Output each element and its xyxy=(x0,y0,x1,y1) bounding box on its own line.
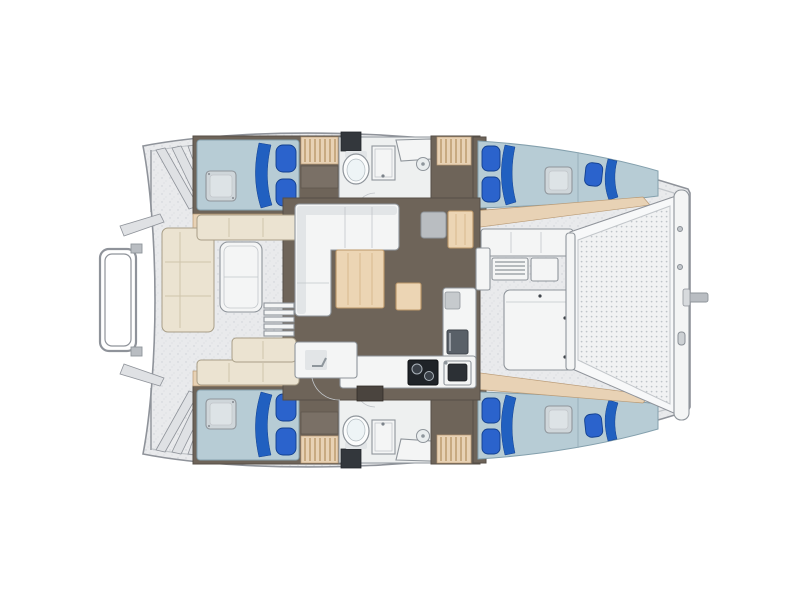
locker-latch xyxy=(538,294,541,297)
bowsprit-base xyxy=(683,289,690,306)
deck-hatch-glass xyxy=(549,171,568,190)
bow-cleat xyxy=(678,332,685,345)
sofa-backrest xyxy=(297,206,397,215)
cockpit-bench-bottom xyxy=(197,360,299,385)
sofa-backrest xyxy=(297,206,306,314)
island-cabinet xyxy=(396,283,421,310)
cockpit-corner-seat xyxy=(232,338,296,362)
beam-fitting xyxy=(678,265,683,270)
companionway-step xyxy=(357,386,383,401)
step-tread xyxy=(264,310,294,315)
catamaran-layout-diagram xyxy=(0,0,800,600)
side-cabinet xyxy=(476,248,490,290)
wardrobe xyxy=(301,137,338,188)
stove-burner xyxy=(425,372,434,381)
stove-burner xyxy=(412,364,422,374)
dinghy-davit-frame xyxy=(100,244,142,356)
step-tread xyxy=(264,303,294,308)
davit-inner-frame xyxy=(105,254,131,346)
beam-fitting xyxy=(678,227,683,232)
step-tread xyxy=(264,324,294,329)
wardrobe-ribs xyxy=(305,139,335,162)
vanity-unit xyxy=(341,132,361,151)
entry-steps xyxy=(264,303,294,336)
deck-box xyxy=(531,258,558,281)
davit-mount-bottom xyxy=(131,347,142,356)
stove xyxy=(408,360,438,385)
boat-floor-plan-canvas xyxy=(0,0,800,600)
vent-grille xyxy=(492,258,528,280)
cockpit-l-seat xyxy=(162,228,214,332)
pillow xyxy=(482,177,500,202)
pillow xyxy=(584,162,603,187)
toilet-bowl xyxy=(347,159,365,181)
hatch-hinge xyxy=(208,173,210,175)
galley-appliance xyxy=(445,292,460,309)
step-tread xyxy=(264,331,294,336)
cockpit-bench-top xyxy=(197,215,299,240)
pillow xyxy=(276,145,296,172)
deck-hatch-glass xyxy=(210,175,232,197)
step-tread xyxy=(264,317,294,322)
davit-mount-top xyxy=(131,244,142,253)
nav-table xyxy=(448,211,473,248)
forepeak-berth xyxy=(584,162,603,187)
shower-drain-dot xyxy=(381,174,384,177)
bowsprit xyxy=(688,293,708,302)
trampoline-forward-bar xyxy=(566,233,575,370)
nav-seat xyxy=(421,212,446,238)
dresser xyxy=(301,166,338,188)
sink-basin xyxy=(448,364,467,381)
pillow xyxy=(482,146,500,171)
shower-drain-center xyxy=(421,162,425,166)
hatch-hinge xyxy=(232,197,234,199)
forward-bench-row xyxy=(481,229,573,256)
faucet xyxy=(444,361,447,364)
